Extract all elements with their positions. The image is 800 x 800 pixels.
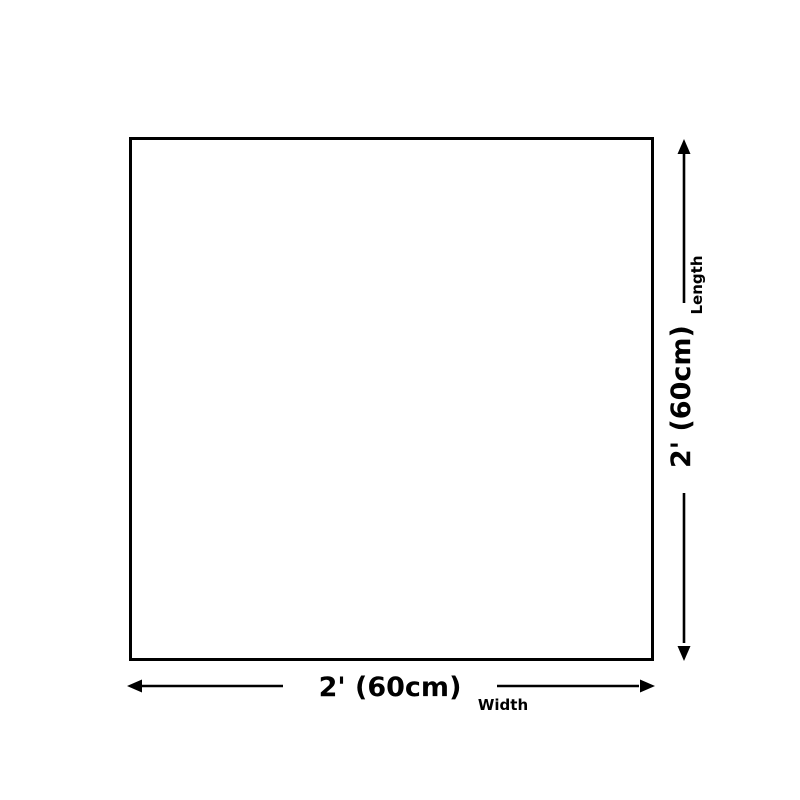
width-arrow-left-icon (127, 678, 283, 694)
width-arrow-right-icon (497, 678, 655, 694)
length-label: Length (690, 255, 706, 315)
product-outline-square (129, 137, 654, 661)
width-value: 2' (60cm) (310, 674, 470, 702)
length-arrow-down-icon (676, 493, 692, 661)
width-label: Width (473, 698, 533, 714)
length-value: 2' (60cm) (668, 328, 696, 468)
dimension-diagram: 2' (60cm) Width Length 2' (60cm) (0, 0, 800, 800)
